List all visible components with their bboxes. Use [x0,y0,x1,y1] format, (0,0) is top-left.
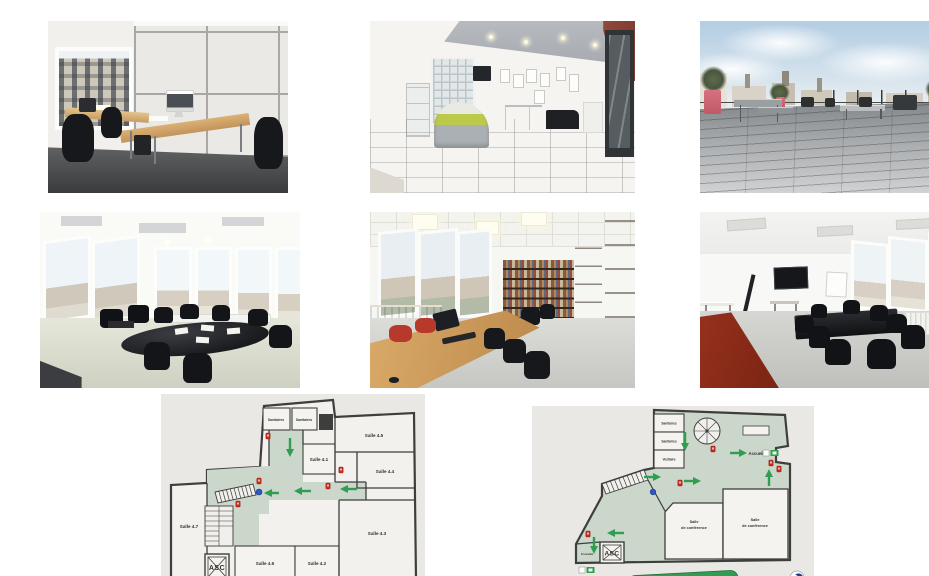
bench [546,110,579,129]
elevator-icon: ASC [205,554,229,576]
wall-art [556,67,566,81]
ceiling-light [521,212,547,226]
wall-art [534,90,544,104]
dark-planter [859,97,872,107]
room-label: Salle [751,518,760,522]
imac-screen [166,90,194,113]
cloud [819,42,929,83]
chair [843,300,860,314]
photo-meeting-room-corner[interactable] [40,212,300,388]
photo-reception[interactable] [370,21,635,193]
reception-table [743,426,769,435]
floor-plan-level-4[interactable]: ASC Sanitaires Sanitaires Salle 4.1 [161,394,425,576]
photo-work-room[interactable] [370,212,635,388]
elevator-label: ASC [605,551,620,558]
window [275,247,300,323]
bench-leg [846,109,848,119]
room-label: Sanitaires [661,440,676,444]
papers [196,337,209,344]
ceiling-panel [816,225,853,237]
location-dot-icon [256,489,262,495]
fire-extinguisher-icon [711,446,715,452]
room-label: Salle 4.6 [256,561,275,566]
wood-deck [700,102,929,193]
fire-extinguisher-icon [326,483,330,489]
window [457,228,492,319]
desk-leg [130,131,132,159]
chair [248,309,268,327]
wall-art [540,73,550,87]
ceiling-panel [896,218,929,230]
chair [180,304,198,320]
wall-art [513,74,523,88]
chair [811,304,827,318]
tv-screen [473,66,490,81]
chimney [745,74,750,88]
spotlight [165,240,169,244]
dark-planter [801,97,814,107]
room-label: Salle 4.2 [308,561,327,566]
red-chair [389,325,413,343]
spotlight [524,40,528,44]
pink-planter [704,90,721,114]
u-staircase-icon [205,506,233,546]
dark-planter [825,98,836,107]
exit-sign-icon [579,567,595,573]
spotlight [206,238,210,242]
office-chair [62,114,93,162]
fire-extinguisher-icon [769,460,773,466]
desk-leg [154,136,156,164]
chair [183,353,212,383]
flipchart [825,271,847,297]
chair [540,304,556,320]
room-label: Salle 4.5 [365,433,384,438]
papers [201,324,214,331]
fire-extinguisher-icon [257,478,261,484]
fire-extinguisher-icon [586,531,590,537]
window [43,235,91,325]
papers [227,328,240,335]
chair [867,339,896,369]
chair [825,339,852,365]
wall-art [526,69,536,83]
papers [149,116,168,121]
white-cabinet [583,102,602,133]
floor-plan-ground-drawing: ASC [532,406,814,576]
photo-office[interactable] [48,21,288,193]
room-label: Salle 4.4 [376,469,395,474]
red-chair [415,318,436,334]
room-label: de conférence [681,526,707,530]
elevator-icon: ASC [600,542,624,563]
bench [758,107,792,113]
floor-plan-ground[interactable]: ASC [532,406,814,576]
ceiling-panel [222,217,264,226]
chair [154,307,172,323]
chimney [817,78,822,92]
wall-screen [774,266,809,289]
wall-art [500,69,510,83]
room-label: Vestiaire [662,458,675,462]
table [734,99,782,107]
office-chair [101,107,123,138]
spotlight [489,35,493,39]
ceiling-panel [61,216,103,227]
photo-terrace[interactable] [700,21,929,193]
wood-cabinet [575,244,602,321]
room-label: Sanitaires [268,418,284,422]
floor-plan-4-drawing: ASC Sanitaires Sanitaires Salle 4.1 [161,394,425,576]
wall-art [569,74,579,91]
shaft [319,414,333,430]
coffee-table [108,321,134,328]
fire-extinguisher-icon [777,466,781,472]
fire-extinguisher-icon [678,480,682,486]
photo-gallery: ASC Sanitaires Sanitaires Salle 4.1 [0,0,929,576]
desk-leg [240,124,242,152]
plant [925,78,929,100]
office-chair [254,117,283,169]
room-label: Salle [690,520,699,524]
door-glass [609,35,630,149]
fire-extinguisher-icon [339,467,343,473]
monitor [79,98,96,112]
photo-meeting-room-screen[interactable] [700,212,929,388]
waste-bin [134,135,151,156]
location-dot-icon [650,489,656,495]
chair [484,328,505,349]
reception-desk [434,102,490,148]
room-label: Salle 4.1 [310,457,329,462]
room-label: de conférence [742,524,768,528]
dark-planter [893,95,917,110]
chair [901,325,925,350]
room-label: Courette [581,552,594,556]
room-label: Sanitaires [296,418,312,422]
chair [269,325,292,348]
room-label: Salle 4.3 [368,531,387,536]
room-label: Accueil [749,451,764,456]
bench-leg [880,109,882,119]
chair [524,351,551,379]
fire-extinguisher-icon [236,501,240,507]
chair [503,339,527,364]
window [888,236,928,313]
ceiling-panel [139,223,186,234]
table-leg [740,105,742,122]
fire-extinguisher-icon [266,433,270,439]
elevator-label: ASC [209,565,225,572]
exit-sign-icon [763,450,779,456]
sideboard [505,105,542,129]
chair [212,305,230,321]
spiral-staircase-icon [694,418,720,444]
room-label: Salle 4.7 [180,524,199,529]
room-label: Sanitaires [661,422,676,426]
computer-mouse [389,377,400,383]
chair [144,342,170,370]
